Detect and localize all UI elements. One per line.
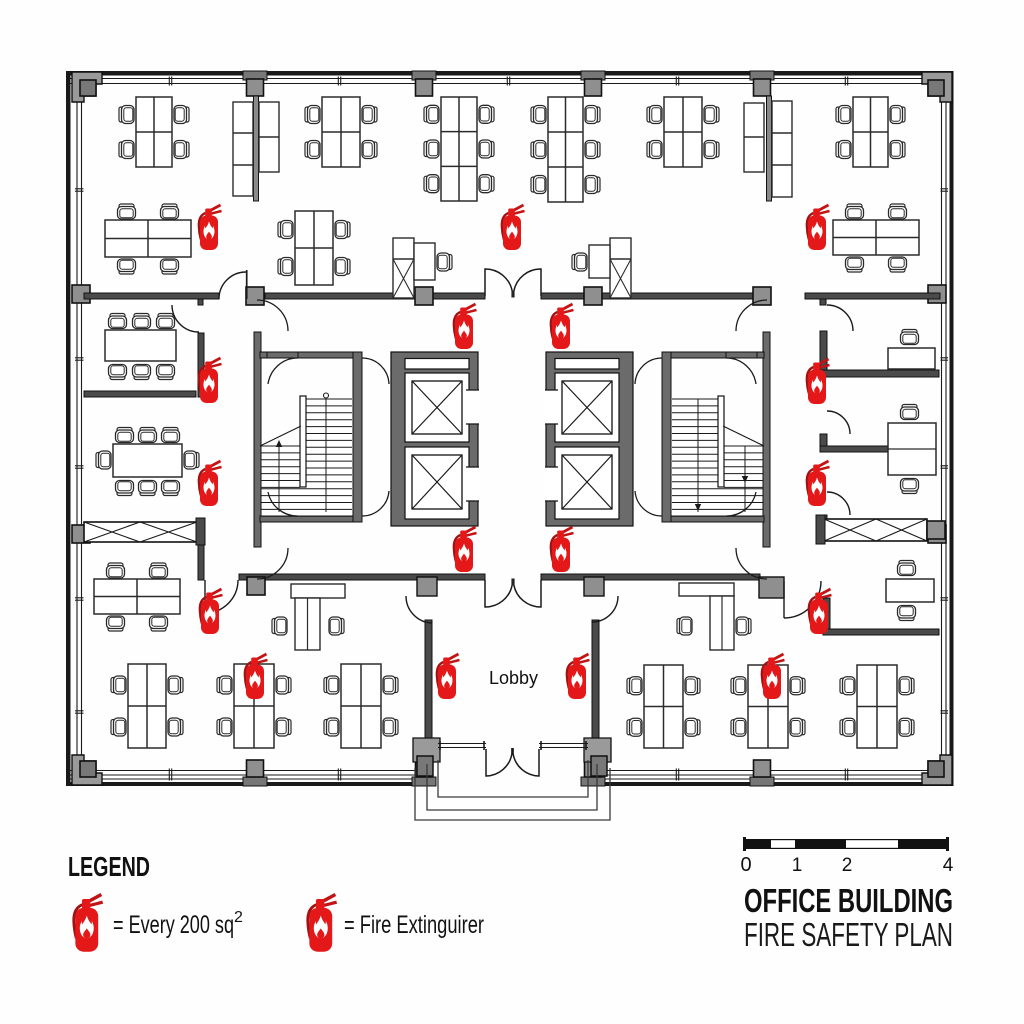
svg-text:FIRE SAFETY PLAN: FIRE SAFETY PLAN [744,916,953,953]
svg-text:0: 0 [740,854,751,876]
svg-text:2: 2 [842,855,853,876]
svg-text:OFFICE BUILDING: OFFICE BUILDING [744,882,953,919]
svg-text:4: 4 [943,855,954,876]
svg-text:= Fire Extinguirer: = Fire Extinguirer [344,911,484,939]
svg-text:LEGEND: LEGEND [68,851,150,882]
svg-text:1: 1 [792,855,803,876]
svg-text:2: 2 [234,909,243,926]
svg-text:Lobby: Lobby [489,668,538,688]
svg-text:= Every 200 sq: = Every 200 sq [113,911,234,939]
